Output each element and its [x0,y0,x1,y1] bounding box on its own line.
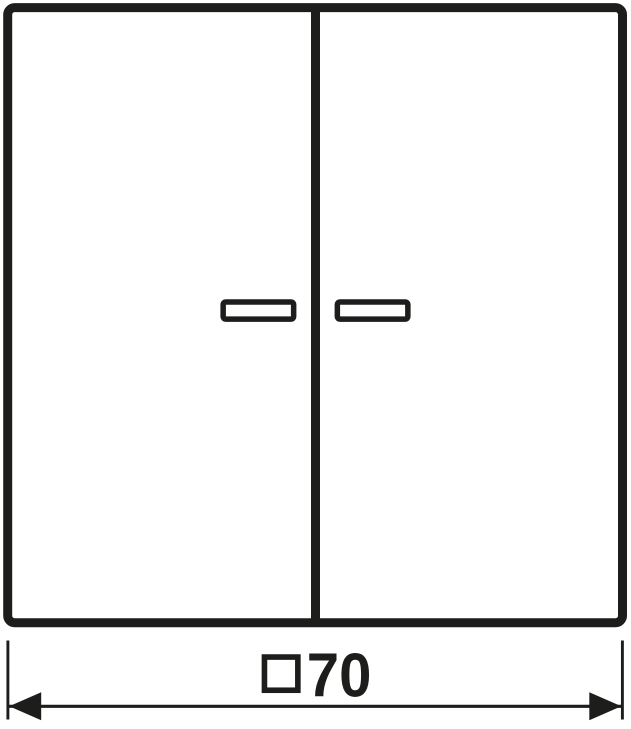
svg-text:70: 70 [307,640,372,710]
